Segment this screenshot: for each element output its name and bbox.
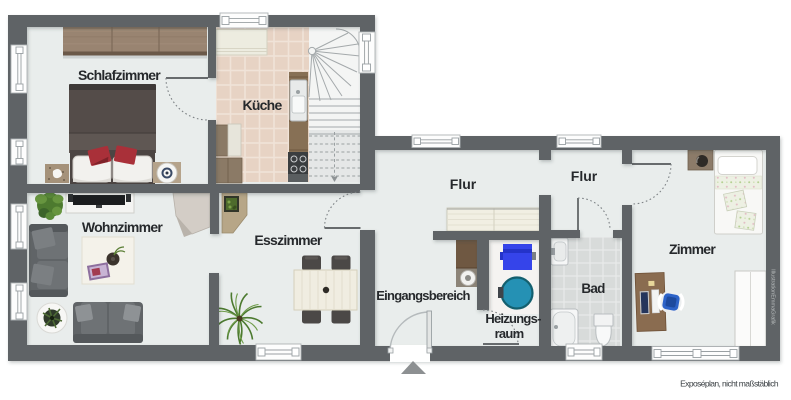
svg-text:Zimmer: Zimmer [669, 241, 716, 257]
svg-text:Küche: Küche [242, 97, 282, 113]
svg-text:Flur: Flur [571, 168, 598, 184]
svg-text:Flur: Flur [450, 176, 477, 192]
svg-text:IllustrationEmmaGrafik: IllustrationEmmaGrafik [770, 269, 776, 325]
svg-text:Wohnzimmer: Wohnzimmer [82, 219, 163, 235]
svg-text:Heizungs-: Heizungs- [485, 311, 541, 326]
svg-text:Eingangsbereich: Eingangsbereich [376, 288, 470, 303]
svg-text:Schlafzimmer: Schlafzimmer [78, 67, 161, 83]
svg-text:Esszimmer: Esszimmer [254, 232, 322, 248]
svg-text:raum: raum [495, 326, 524, 341]
svg-text:Bad: Bad [581, 281, 605, 296]
svg-text:Exposéplan, nicht maßstäblich: Exposéplan, nicht maßstäblich [680, 379, 779, 389]
